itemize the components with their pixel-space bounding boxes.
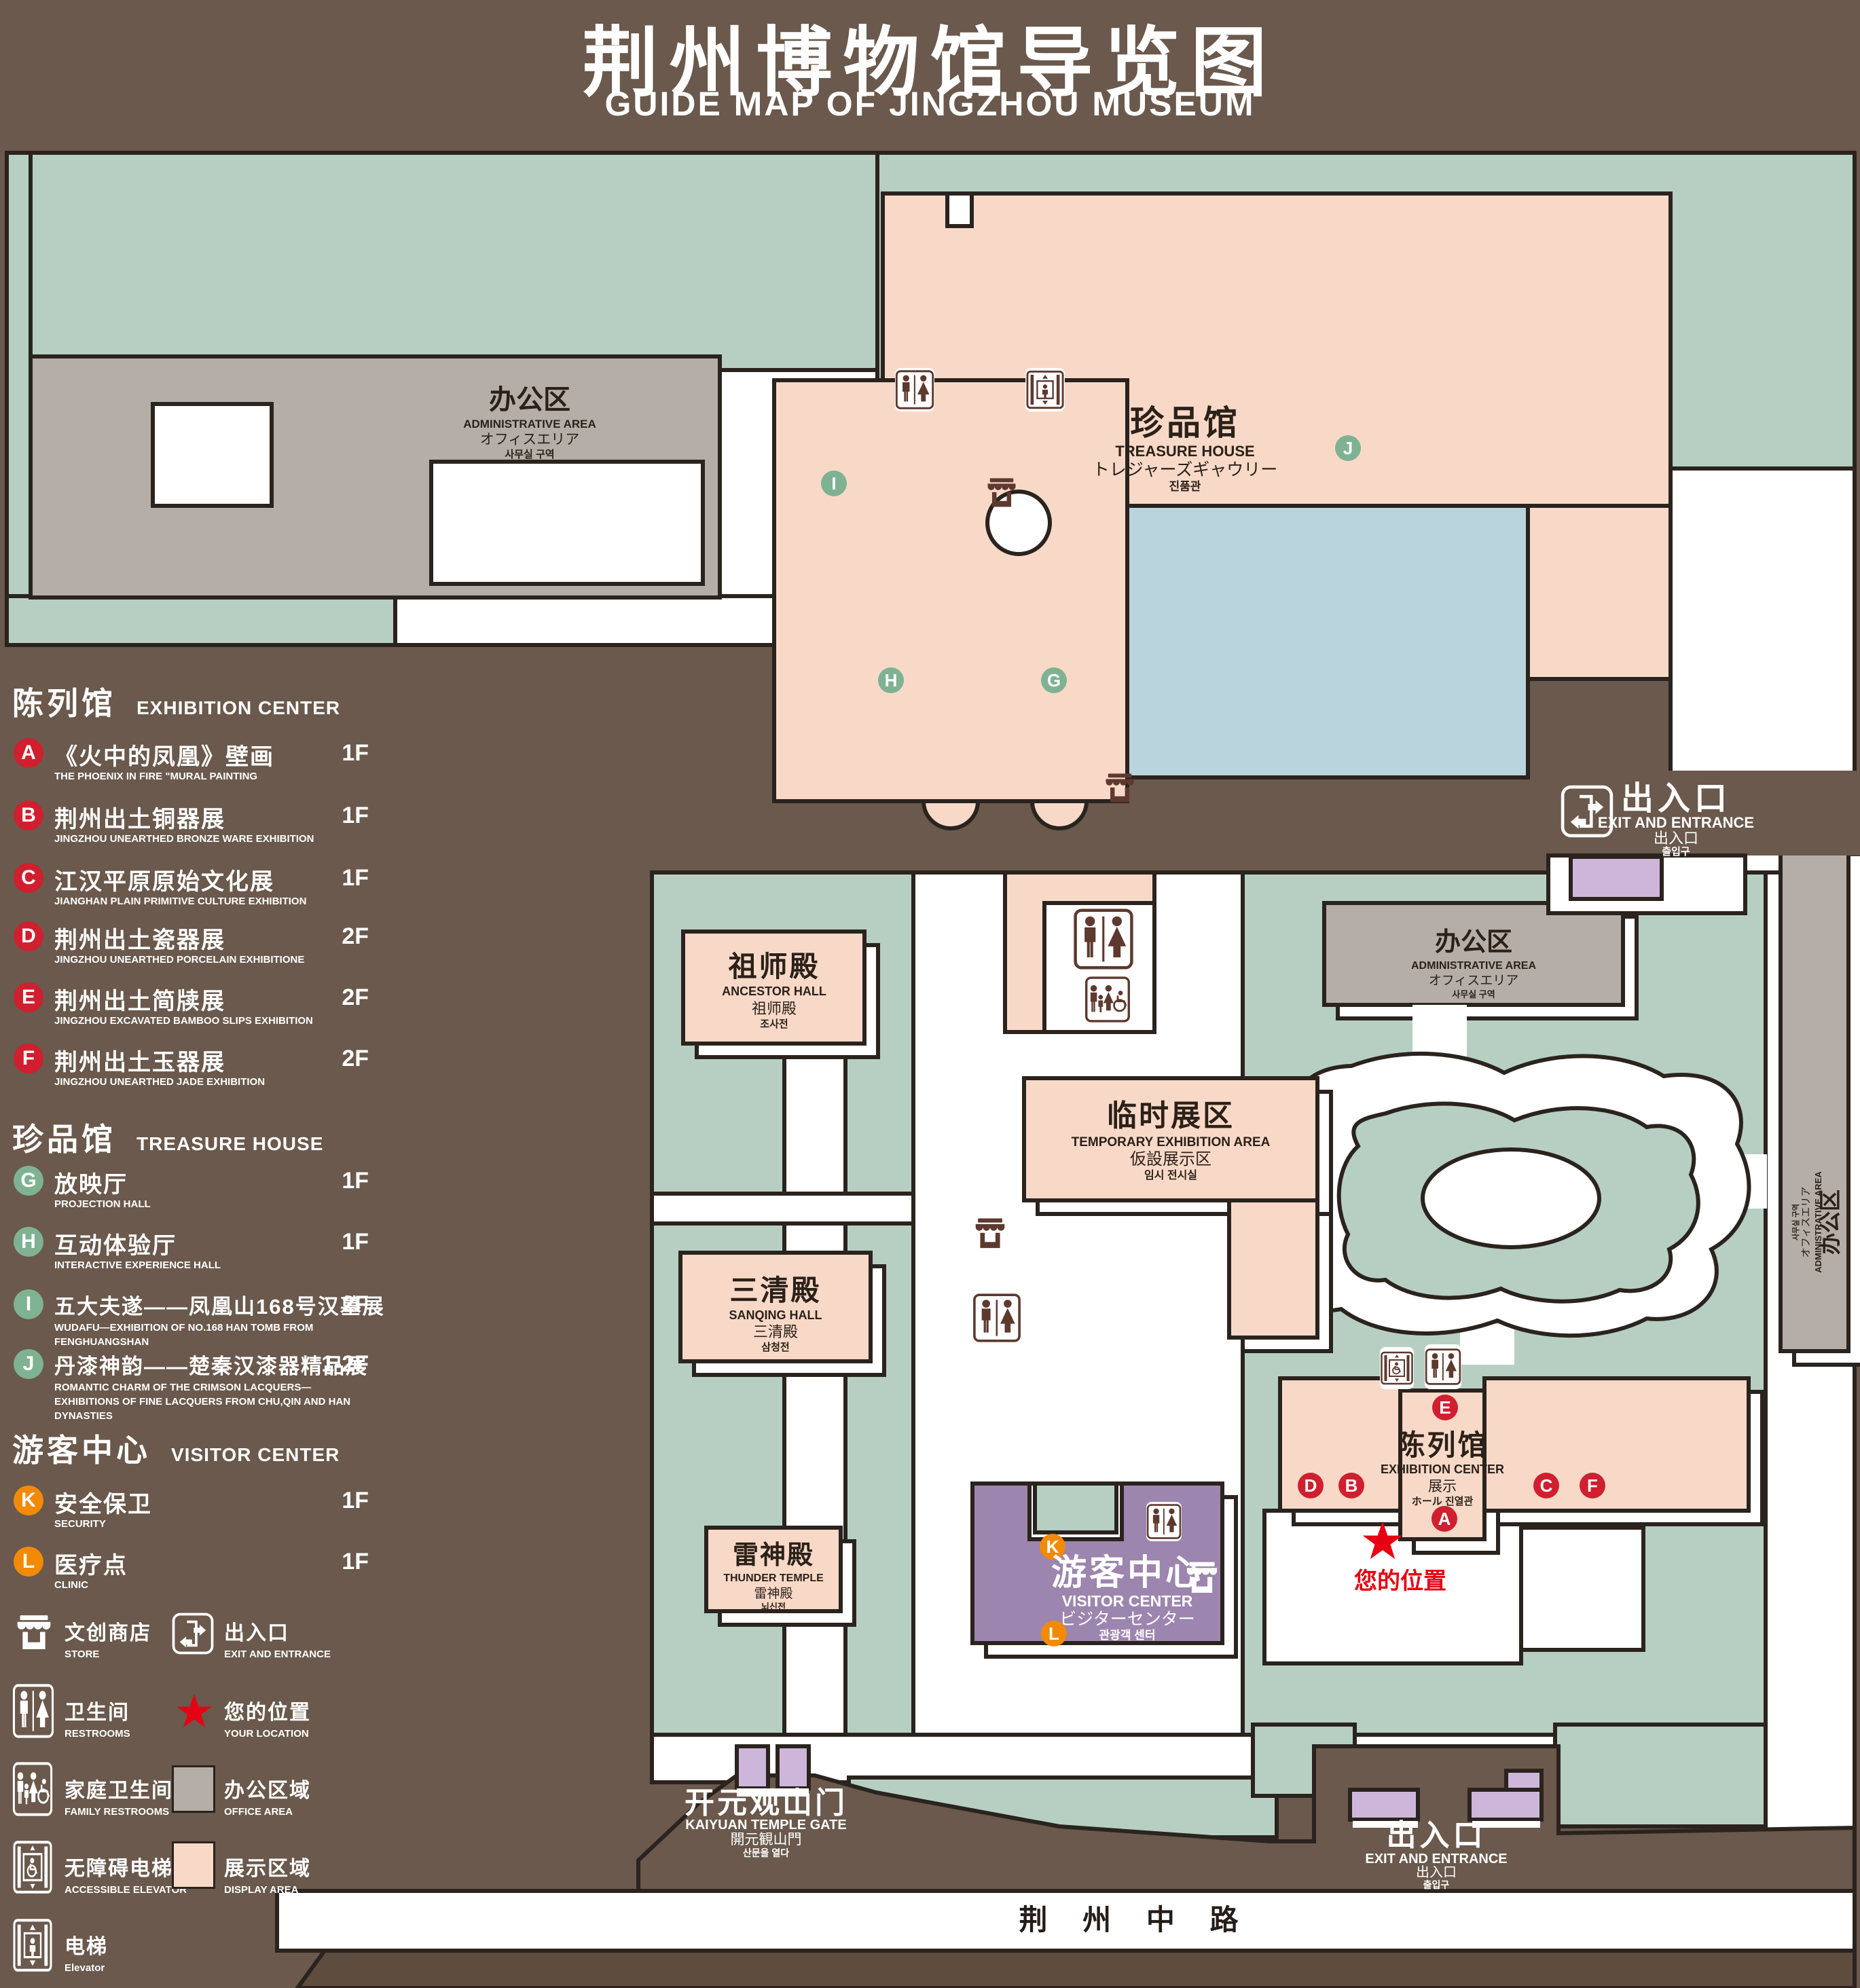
legend-restrooms: 卫生间 RESTROOMS [65,1695,130,1739]
svg-text:雷神殿: 雷神殿 [733,1541,814,1570]
exit-building-top-right [1571,857,1662,899]
svg-text:THUNDER TEMPLE: THUNDER TEMPLE [723,1572,824,1584]
item-en: JINGZHOU EXCAVATED BAMBOO SLIPS EXHIBITI… [54,1014,373,1028]
map-badge-E: E [1432,1395,1458,1420]
legend-item-j: J 丹漆神韵——楚秦汉漆器精品展 ROMANTIC CHARM OF THE C… [12,1349,393,1410]
page-subtitle: GUIDE MAP OF JINGZHOU MUSEUM [0,84,1860,124]
svg-text:EXIT AND ENTRANCE: EXIT AND ENTRANCE [1365,1852,1507,1866]
badge-j: J [14,1349,43,1379]
legend-section-exhibition: 陈列馆EXHIBITION CENTER [12,679,340,724]
svg-text:L: L [1048,1623,1059,1644]
svg-text:办公区: 办公区 [1435,928,1512,957]
map-badge-B: B [1338,1473,1364,1498]
item-zh: 荆州出土简牍展 [54,982,225,1016]
icon-label-en: ACCESSIBLE ELEVATOR [65,1884,187,1896]
item-zh: 互动体验厅 [54,1227,177,1260]
display-area-swatch [172,1841,215,1889]
store-icon [12,1610,56,1657]
icon-label-zh: 办公区域 [224,1773,311,1803]
exit-building-south-2 [1470,1790,1542,1820]
section-title-en: TREASURE HOUSE [136,1133,323,1154]
legend-item-h: H 互动体验厅 INTERACTIVE EXPERIENCE HALL 1F [12,1227,393,1288]
svg-text:조사전: 조사전 [760,1018,788,1030]
map-badge-G: G [1041,667,1067,693]
exit-building-south-1 [1350,1790,1418,1820]
item-en: SECURITY [54,1517,373,1531]
legend-item-b: B 荆州出土铜器展 JINGZHOU UNEARTHED BRONZE WARE… [12,800,393,862]
icon-label-zh: 展示区域 [224,1852,311,1881]
svg-text:办公区: 办公区 [489,385,570,415]
icon-label-en: YOUR LOCATION [224,1728,311,1739]
admin-courtyard-1 [153,404,272,506]
svg-text:珍品馆: 珍品馆 [1130,404,1240,442]
svg-text:TEMPORARY EXHIBITION AREA: TEMPORARY EXHIBITION AREA [1072,1135,1271,1149]
svg-text:뇌신전: 뇌신전 [761,1602,786,1612]
badge-l: L [14,1547,43,1577]
svg-text:オフィスエリア: オフィスエリア [480,432,580,447]
item-zh: 《火中的凤凰》壁画 [54,738,274,771]
item-floor: 1F [318,1549,369,1575]
section-title-en: EXHIBITION CENTER [136,697,340,718]
item-floor: 1F [318,740,369,767]
visitor-label: 游客中心 VISITOR CENTER ビジターセンター 관광객 센터 [1051,1553,1203,1642]
svg-text:临时展区: 临时展区 [1107,1099,1235,1133]
green-area-top-left [7,153,877,377]
item-zh: 安全保卫 [54,1486,152,1519]
svg-text:관광객 센터: 관광객 센터 [1099,1629,1156,1642]
svg-text:A: A [1438,1509,1451,1529]
svg-text:オフィスエリア: オフィスエリア [1800,1187,1812,1258]
svg-text:ADMINISTRATIVE AREA: ADMINISTRATIVE AREA [1813,1171,1823,1273]
section-title-zh: 珍品馆 [12,1122,116,1157]
svg-text:출입구: 출입구 [1662,846,1690,858]
svg-text:三清殿: 三清殿 [729,1274,821,1306]
accessible-elevator-icon [12,1840,53,1894]
guide-map-page: I J H G E D B C F A K L 办公区 ADMINISTRATI… [0,0,1860,1988]
jingzhou-road [297,1951,1855,1988]
svg-text:陈列馆: 陈列馆 [1396,1429,1488,1461]
legend-section-treasure: 珍品馆TREASURE HOUSE [12,1115,323,1160]
legend-item-l: L 医疗点 CLINIC 1F [12,1547,393,1608]
item-floor: 1F [318,803,369,829]
svg-text:游客中心: 游客中心 [1051,1553,1203,1593]
item-zh: 江汉平原原始文化展 [54,863,274,896]
item-zh: 荆州出土瓷器展 [54,921,225,955]
legend-store: 文创商店 STORE [65,1616,151,1660]
icon-label-en: Elevator [65,1962,108,1974]
section-title-zh: 游客中心 [12,1433,151,1468]
item-floor: 2F [318,923,369,950]
svg-text:KAIYUAN TEMPLE GATE: KAIYUAN TEMPLE GATE [685,1818,846,1833]
legend-item-i: I 五大夫遂——凤凰山168号汉墓展 WUDAFU—EXHIBITION OF … [12,1289,393,1350]
exhibition-accessible-elevator-icon [1380,1347,1414,1389]
svg-text:H: H [885,670,898,691]
item-floor: 1-2F [318,1351,369,1378]
icon-label-zh: 文创商店 [65,1616,151,1646]
item-en: WUDAFU—EXHIBITION OF NO.168 HAN TOMB FRO… [54,1321,373,1349]
badge-k: K [14,1486,43,1515]
svg-text:展示: 展示 [1428,1479,1457,1494]
svg-text:出入口: 出入口 [1416,1864,1457,1880]
map-badge-I: I [821,471,847,496]
your-location-label: 您的位置 [1354,1568,1446,1594]
svg-text:仮設展示区: 仮設展示区 [1130,1150,1211,1168]
svg-text:開元観山門: 開元観山門 [731,1832,802,1847]
svg-text:사무실 구역: 사무실 구역 [505,449,554,460]
item-floor: 1F [318,1488,369,1514]
badge-b: B [14,800,43,830]
map-badge-J: J [1335,435,1361,461]
elevator-icon [12,1918,53,1972]
svg-text:I: I [831,473,836,494]
svg-text:出入口: 出入口 [1621,781,1731,817]
admin-courtyard-2 [431,462,703,584]
item-en: PROJECTION HALL [54,1197,373,1211]
exhibition-east-wing [1484,1378,1749,1511]
item-en: JINGZHOU UNEARTHED PORCELAIN EXHIBITIONE [54,953,373,967]
svg-text:산문을 열다: 산문을 열다 [743,1847,789,1858]
item-floor: 2F [318,984,369,1011]
svg-text:SANQING HALL: SANQING HALL [729,1308,822,1322]
svg-text:임시 전시실: 임시 전시실 [1144,1169,1197,1181]
treasure-house-west-wing [774,380,1127,801]
legend-item-f: F 荆州出土玉器展 JINGZHOU UNEARTHED JADE EXHIBI… [12,1044,393,1105]
item-floor: 2F [318,1291,369,1318]
svg-text:G: G [1047,670,1061,691]
svg-text:사무실 구역: 사무실 구역 [1452,989,1495,999]
office-area-swatch [172,1765,215,1813]
svg-text:オフィスエリア: オフィスエリア [1429,974,1519,988]
item-en: CLINIC [54,1578,373,1592]
map-badge-H: H [878,667,904,693]
restrooms-icon [12,1684,54,1738]
svg-text:トレジャーズギャウリー: トレジャーズギャウリー [1093,460,1278,479]
item-floor: 1F [318,1168,369,1194]
legend-elevator: 电梯 Elevator [65,1930,108,1974]
svg-text:出入口: 出入口 [1654,830,1698,847]
family-restrooms-icon [12,1762,53,1816]
icon-label-en: RESTROOMS [65,1728,130,1739]
temporary-building-leg [1229,1200,1317,1338]
round-plaza [987,492,1050,554]
item-en: INTERACTIVE EXPERIENCE HALL [54,1258,373,1272]
treasure-apse-1 [924,801,978,828]
treasure-restrooms-icon [895,368,934,411]
item-zh: 放映厅 [54,1166,128,1199]
item-en: ROMANTIC CHARM OF THE CRIMSON LACQUERS—E… [54,1380,373,1423]
svg-text:사무실 구역: 사무실 구역 [1791,1204,1800,1240]
section-title-en: VISITOR CENTER [171,1444,340,1465]
svg-text:ホール 진열관: ホール 진열관 [1412,1496,1474,1507]
legend-item-c: C 江汉平原原始文化展 JIANGHAN PLAIN PRIMITIVE CUL… [12,863,393,924]
legend-family: 家庭卫生间 FAMILY RESTROOMS [65,1773,173,1818]
svg-text:J: J [1343,438,1353,458]
svg-text:ADMINISTRATIVE AREA: ADMINISTRATIVE AREA [463,418,596,430]
badge-a: A [14,738,43,768]
svg-text:ビジターセンター: ビジターセンター [1059,1610,1195,1629]
svg-text:F: F [1587,1475,1598,1496]
exhibition-courtyard-east [1521,1528,1643,1650]
green-strip-left [7,153,31,645]
badge-d: D [14,921,43,951]
svg-text:EXHIBITION CENTER: EXHIBITION CENTER [1381,1462,1504,1476]
item-en: THE PHOENIX IN FIRE "MURAL PAINTING [54,769,373,784]
map-badge-C: C [1533,1473,1559,1498]
map-badge-A: A [1432,1506,1457,1532]
item-floor: 2F [318,1046,369,1072]
legend-accessible-elevator: 无障碍电梯 ACCESSIBLE ELEVATOR [65,1852,187,1896]
svg-text:ADMINISTRATIVE AREA: ADMINISTRATIVE AREA [1411,960,1536,972]
exit-building-south-2b [1506,1771,1542,1790]
exit-icon [172,1610,214,1657]
svg-text:雷神殿: 雷神殿 [754,1586,792,1601]
legend-item-k: K 安全保卫 SECURITY 1F [12,1486,393,1547]
green-south-3 [1555,1725,1766,1826]
item-floor: 1F [318,865,369,891]
map-badge-D: D [1298,1473,1324,1498]
admin-building-right [1781,841,1848,1351]
icon-label-en: FAMILY RESTROOMS [65,1806,173,1818]
svg-text:祖师殿: 祖师殿 [728,951,820,982]
location-star-icon [175,1693,213,1731]
icon-label-en: OFFICE AREA [224,1806,311,1818]
icon-label-en: STORE [65,1649,151,1660]
svg-text:E: E [1439,1397,1451,1418]
item-en: JINGZHOU UNEARTHED BRONZE WARE EXHIBITIO… [54,832,373,846]
svg-text:出入口: 出入口 [1387,1819,1487,1852]
svg-text:삼청전: 삼청전 [761,1342,789,1353]
legend-section-visitor: 游客中心VISITOR CENTER [12,1426,340,1471]
visitor-notch-green [1035,1484,1116,1532]
icon-label-en: DISPLAY AREA [224,1884,311,1896]
item-zh: 荆州出土铜器展 [54,800,225,834]
icon-label-zh: 无障碍电梯 [65,1852,187,1881]
badge-g: G [14,1166,43,1196]
item-zh: 荆州出土玉器展 [54,1044,225,1077]
map-badge-F: F [1580,1473,1605,1498]
item-en: JIANGHAN PLAIN PRIMITIVE CULTURE EXHIBIT… [54,894,373,908]
badge-f: F [14,1044,43,1073]
legend-item-d: D 荆州出土瓷器展 JINGZHOU UNEARTHED PORCELAIN E… [12,921,393,982]
legend-display-area: 展示区域 DISPLAY AREA [224,1852,311,1896]
svg-text:EXIT AND ENTRANCE: EXIT AND ENTRANCE [1598,814,1754,831]
icon-label-zh: 出入口 [224,1616,331,1646]
svg-text:출입구: 출입구 [1423,1879,1450,1890]
svg-text:祖师殿: 祖师殿 [752,1000,797,1017]
green-strip-bottom-left [7,596,395,645]
svg-text:VISITOR CENTER: VISITOR CENTER [1062,1592,1193,1610]
legend-exit: 出入口 EXIT AND ENTRANCE [224,1616,331,1660]
legend-item-e: E 荆州出土简牍展 JINGZHOU EXCAVATED BAMBOO SLIP… [12,982,393,1044]
icon-label-en: EXIT AND ENTRANCE [224,1649,331,1660]
exhibition-restrooms-icon [1425,1344,1461,1389]
legend-office-area: 办公区域 OFFICE AREA [224,1773,311,1818]
badge-e: E [14,982,43,1012]
gate-tower-1 [737,1746,768,1788]
item-en: JINGZHOU UNEARTHED JADE EXHIBITION [54,1075,373,1089]
halls-path-vertical [784,1044,845,1753]
garden-pond [1423,1149,1599,1247]
badge-i: I [14,1289,43,1319]
road-label: 荆 州 中 路 [1019,1904,1252,1936]
visitor-restrooms-icon [1146,1502,1182,1541]
svg-text:C: C [1540,1475,1553,1496]
icon-label-zh: 您的位置 [224,1695,311,1725]
legend-item-g: G 放映厅 PROJECTION HALL 1F [12,1166,393,1227]
svg-text:ANCESTOR HALL: ANCESTOR HALL [722,984,826,998]
svg-text:D: D [1305,1475,1317,1496]
halls-path-horizontal [652,1194,913,1223]
svg-text:三清殿: 三清殿 [753,1323,798,1340]
treasure-notch [947,194,972,226]
svg-text:B: B [1345,1475,1358,1496]
gate-tower-2 [778,1746,809,1788]
badge-h: H [14,1227,43,1257]
treasure-house-east-wing [1528,506,1671,679]
item-floor: 1F [318,1229,369,1255]
svg-text:开元观山门: 开元观山门 [685,1786,847,1820]
legend-location: 您的位置 YOUR LOCATION [224,1695,311,1739]
treasure-apse-2 [1032,801,1087,828]
item-zh: 医疗点 [54,1547,128,1580]
svg-text:진품관: 진품관 [1169,480,1201,493]
legend-item-a: A 《火中的凤凰》壁画 THE PHOENIX IN FIRE "MURAL P… [12,738,393,799]
badge-c: C [14,863,43,893]
icon-label-zh: 卫生间 [65,1695,130,1725]
icon-label-zh: 家庭卫生间 [65,1773,173,1803]
treasure-elevator-icon [1025,368,1065,411]
svg-text:TREASURE HOUSE: TREASURE HOUSE [1115,443,1254,460]
icon-label-zh: 电梯 [65,1930,108,1959]
section-title-zh: 陈列馆 [12,686,116,721]
